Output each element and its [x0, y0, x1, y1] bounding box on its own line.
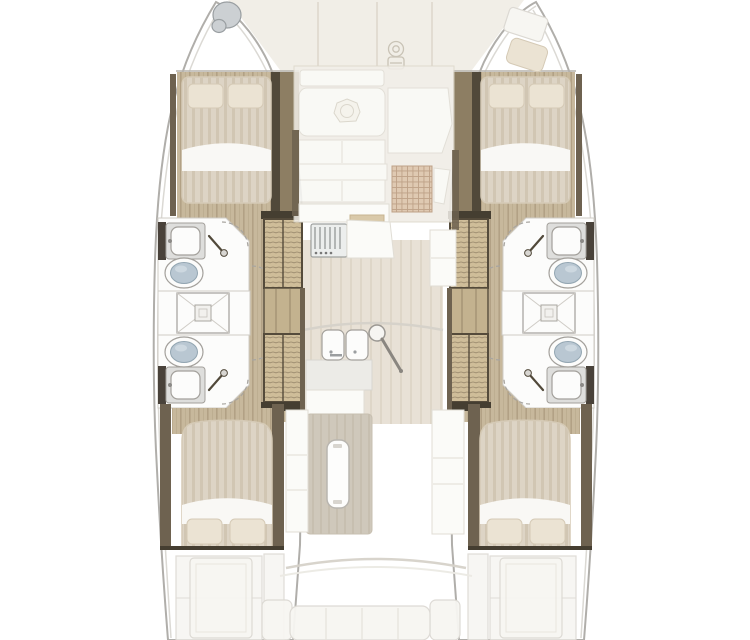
sink-counter [306, 360, 372, 390]
pillow [188, 84, 223, 108]
cabin-side-trim [272, 404, 284, 548]
companionway-stairs [261, 211, 304, 411]
sink-basin [346, 330, 368, 360]
sink-forward [158, 222, 205, 260]
galley-and-corridor [299, 204, 456, 426]
floorplan-canvas [0, 0, 750, 640]
table-end-fitting [333, 444, 342, 448]
dinette-side-cabinet [432, 410, 464, 534]
bowl-icon [334, 99, 360, 122]
salon-seat-back [300, 70, 384, 86]
cockpit [190, 558, 562, 640]
cabin-side-trim [170, 74, 176, 216]
hull-starboard [448, 2, 598, 640]
bench-cushion [290, 606, 430, 640]
cockpit-side-table [500, 558, 562, 638]
cabin-wall-dark [271, 72, 280, 219]
pillow [230, 519, 265, 544]
cockpit-door-arc-inner [280, 567, 472, 576]
catamaran-floorplan [0, 0, 750, 640]
galley-counter [347, 220, 394, 258]
sink-aft [158, 366, 205, 404]
salon-wall-trim [292, 130, 299, 216]
bed-sheet-fold [182, 143, 271, 171]
toilet-lid-highlight [175, 266, 187, 273]
cabin-side-trim [160, 404, 171, 548]
toilet-lid-highlight [175, 345, 187, 352]
bench-armrest [430, 600, 460, 640]
sink-faucet [330, 354, 342, 357]
salon-bench-edge [299, 164, 387, 180]
pillow [228, 84, 263, 108]
shower-drain-icon [195, 305, 211, 321]
cockpit-bench [262, 600, 460, 640]
grid-mat [392, 166, 432, 212]
hull-port [154, 2, 304, 640]
toilet-aft [165, 337, 203, 367]
stair-landing [264, 288, 302, 334]
galley-stove [311, 224, 347, 257]
dinette [286, 410, 464, 534]
dinette-table [327, 440, 349, 508]
shower-stall [177, 293, 229, 333]
toilet-forward [165, 258, 203, 288]
dinette-side-cabinet [286, 410, 308, 532]
pillow [187, 519, 222, 544]
salon-wall-trim [452, 150, 459, 230]
corridor-trim [300, 288, 305, 424]
forward-cabin [170, 72, 299, 219]
aft-bulkhead [160, 546, 284, 550]
cockpit-side-table [190, 558, 252, 638]
corridor-trim [447, 288, 452, 424]
salon-side-seat [388, 88, 452, 153]
table-end-fitting [333, 500, 342, 504]
bench-armrest [262, 600, 292, 640]
